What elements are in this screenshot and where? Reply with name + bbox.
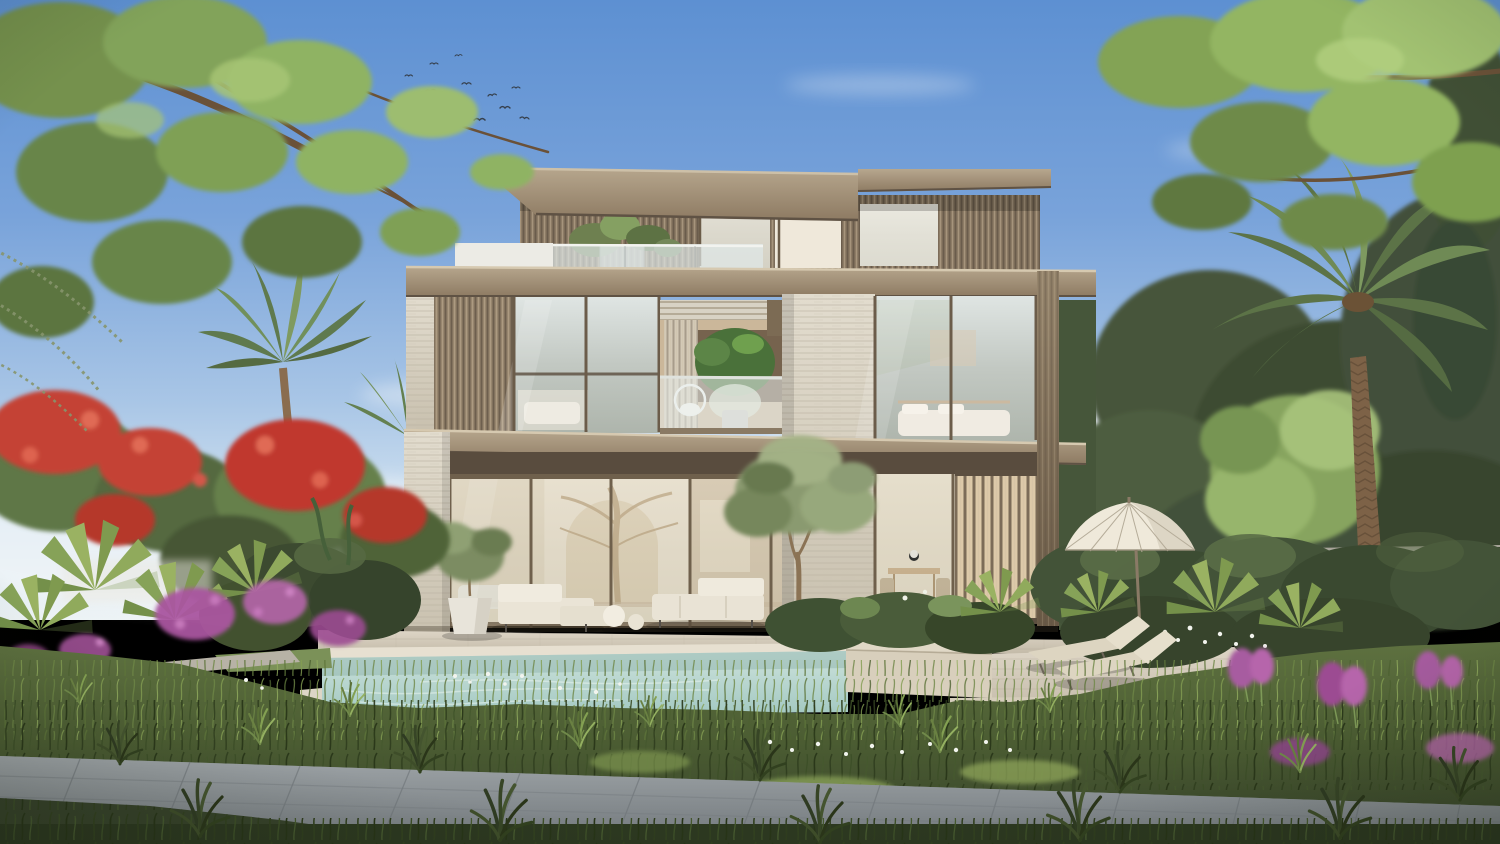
- vignette: [0, 0, 1500, 844]
- villa-render-scene: [0, 0, 1500, 844]
